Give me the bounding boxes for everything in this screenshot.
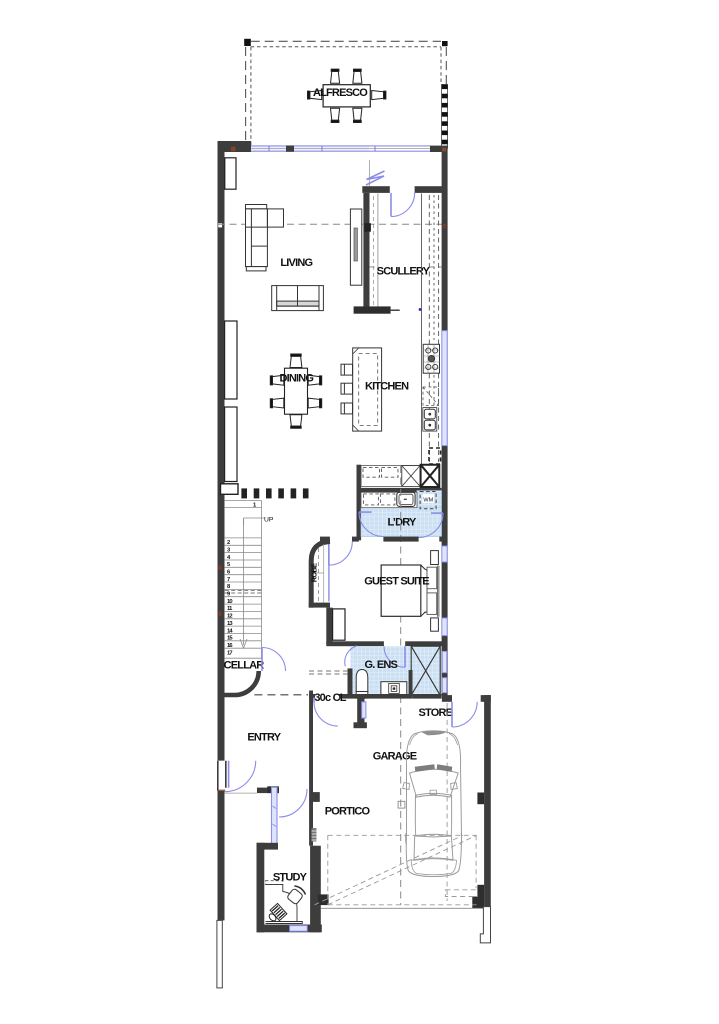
svg-text:GARAGE: GARAGE (373, 751, 417, 763)
svg-text:GUEST SUITE: GUEST SUITE (364, 576, 429, 588)
svg-text:DINING: DINING (279, 373, 313, 385)
svg-text:12: 12 (227, 614, 232, 620)
svg-text:UP: UP (264, 517, 274, 524)
svg-text:ROBE: ROBE (310, 563, 319, 582)
svg-text:G. ENS: G. ENS (365, 659, 398, 671)
svg-text:SCULLERY: SCULLERY (377, 266, 431, 278)
svg-text:KITCHEN: KITCHEN (365, 381, 409, 393)
svg-text:LIVING: LIVING (280, 257, 312, 269)
svg-text:ALFRESCO: ALFRESCO (313, 87, 368, 99)
svg-text:STUDY: STUDY (273, 872, 308, 884)
svg-text:WM: WM (423, 497, 433, 503)
svg-text:30c CL: 30c CL (314, 692, 346, 704)
svg-text:PORTICO: PORTICO (325, 805, 371, 817)
svg-text:ENTRY: ENTRY (247, 731, 281, 743)
svg-text:CELLAR: CELLAR (224, 660, 265, 672)
svg-text:10: 10 (227, 599, 232, 605)
svg-text:L’DRY: L’DRY (388, 516, 417, 528)
svg-text:17: 17 (227, 650, 232, 656)
